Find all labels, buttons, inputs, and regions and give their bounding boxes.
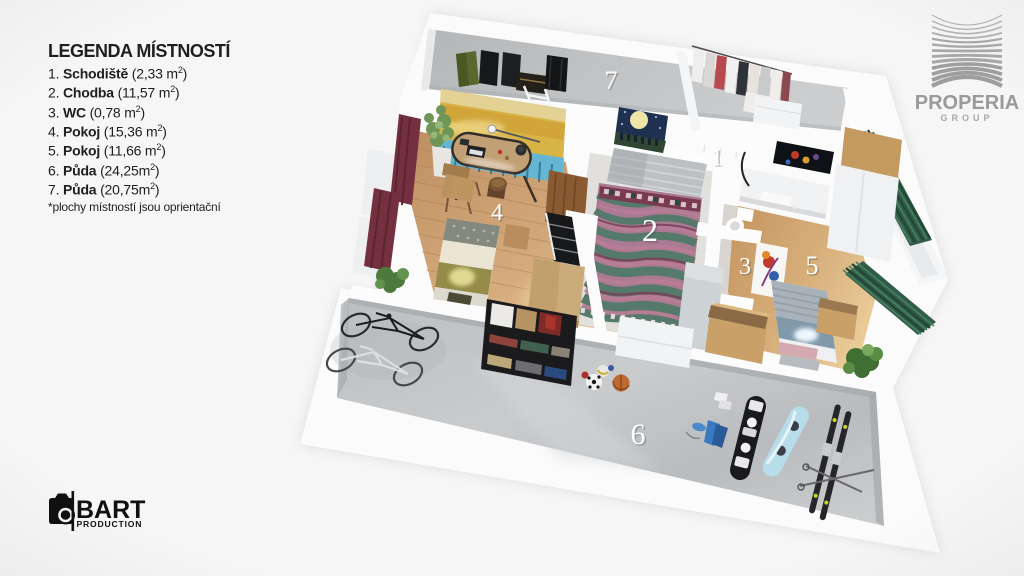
svg-text:PRODUCTION: PRODUCTION (77, 519, 143, 529)
